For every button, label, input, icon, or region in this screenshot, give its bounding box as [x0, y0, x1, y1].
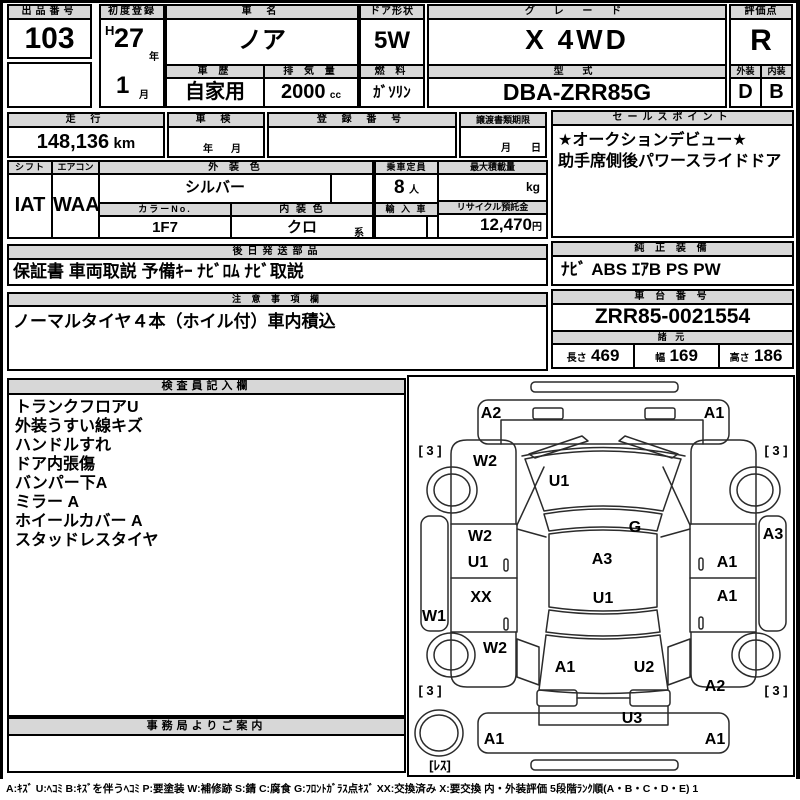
damage-mark-U2: U2	[634, 660, 654, 676]
transfer-deadline-box: 譲渡書類期限 月 日	[459, 112, 547, 158]
grade-label: グ レ ー ド	[429, 6, 725, 20]
lot-number-box: 出品番号 103	[7, 4, 92, 59]
car-name-label: 車 名	[167, 6, 357, 20]
inspector-note-line: 外装うすい線キズ	[15, 417, 398, 436]
damage-mark-A1: A1	[555, 660, 575, 676]
shift-box: シフト IAT	[7, 160, 53, 239]
equipment-label: 純 正 装 備	[553, 243, 792, 257]
lot-number-empty-box	[7, 62, 92, 108]
damage-marks-layer: A2A1[ 3 ][ 3 ]W2U1GW2U1A3A3A1XXU1A1W1W2A…	[409, 377, 793, 775]
capacity-box: 乗車定員 8 人 輸 入 車	[374, 160, 439, 239]
damage-mark-A2: A2	[705, 679, 725, 695]
damage-mark-U1: U1	[549, 474, 569, 490]
equipment-box: 純 正 装 備 ﾅﾋﾞ ABS ｴｱB PS PW	[551, 241, 794, 286]
score-value: R	[731, 20, 791, 66]
exterior-grade-label: 外装	[731, 66, 760, 79]
office-info-label: 事務局よりご案内	[9, 719, 404, 736]
displacement-value: 2000	[281, 81, 326, 103]
inspector-note-line: バンパー下A	[15, 474, 398, 493]
equipment-value: ﾅﾋﾞ ABS ｴｱB PS PW	[553, 257, 792, 283]
later-parts-value: 保証書 車両取説 予備ｷｰ ﾅﾋﾞﾛﾑ ﾅﾋﾞ取説	[9, 260, 546, 284]
exterior-grade-value: D	[731, 79, 760, 105]
lot-number-value: 103	[9, 20, 90, 58]
inspector-note-line: ハンドルすれ	[15, 436, 398, 455]
sales-point-label: セールスポイント	[553, 112, 792, 126]
interior-color-suffix: 系	[354, 224, 364, 239]
import-cell-right	[428, 217, 437, 239]
exterior-color-value: シルバー	[100, 175, 332, 202]
damage-mark-3: [ 3 ]	[764, 443, 787, 459]
lot-number-label: 出品番号	[9, 6, 90, 20]
displacement-label: 排 気 量	[265, 66, 357, 79]
damage-mark-3: [ 3 ]	[418, 443, 441, 459]
dimensions-label: 諸 元	[553, 330, 792, 345]
damage-mark-XX: XX	[470, 590, 491, 606]
legend-text: A:ｷｽﾞ U:ﾍｺﾐ B:ｷｽﾞを伴うﾍｺﾐ P:要塗装 W:補修跡 S:錆 …	[6, 781, 796, 796]
grade-box: グ レ ー ド X 4WD 型 式 DBA-ZRR85G	[427, 4, 727, 108]
chassis-dims-box: 車 台 番 号 ZRR85-0021554 諸 元 長さ 469 幅 169 高…	[551, 289, 794, 369]
max-load-box: 最大積載量 kg リサイクル預託金 12,470円	[437, 160, 548, 239]
damage-mark-A1: A1	[717, 589, 737, 605]
door-shape-value: 5W	[361, 20, 423, 66]
later-parts-box: 後日発送部品 保証書 車両取説 予備ｷｰ ﾅﾋﾞﾛﾑ ﾅﾋﾞ取説	[7, 244, 548, 286]
recycle-value: 12,470	[480, 215, 532, 234]
aircon-value: WAA	[53, 175, 98, 235]
score-box: 評価点 R 外装 D 内装 B	[729, 4, 793, 108]
length-value: 469	[591, 346, 619, 365]
max-load-label: 最大積載量	[439, 162, 546, 175]
notes-box: 注 意 事 項 欄 ノーマルタイヤ４本（ホイル付）車内積込	[7, 292, 548, 371]
chassis-label: 車 台 番 号	[553, 291, 792, 305]
chassis-value: ZRR85-0021554	[553, 305, 792, 330]
damage-mark-U1: U1	[593, 591, 613, 607]
length-label: 長さ	[567, 353, 587, 364]
damage-mark-U3: U3	[622, 711, 642, 727]
inspection-year-unit: 年	[203, 140, 213, 155]
door-shape-label: ドア形状	[361, 6, 423, 20]
max-load-unit: kg	[439, 175, 546, 202]
later-parts-label: 後日発送部品	[9, 246, 546, 260]
first-reg-era: H	[105, 23, 114, 38]
inspection-box: 車 検 年 月	[167, 112, 265, 158]
car-name-value: ノア	[167, 20, 357, 66]
recycle-unit: 円	[532, 222, 542, 233]
fuel-label: 燃 料	[361, 66, 423, 79]
displacement-unit: cc	[330, 90, 341, 101]
damage-mark-: [ﾚｽ]	[429, 758, 451, 774]
registration-number-box: 登 録 番 号	[267, 112, 457, 158]
damage-mark-G: G	[629, 520, 641, 536]
model-code-value: DBA-ZRR85G	[429, 79, 725, 106]
first-reg-month: 1	[116, 72, 129, 100]
sales-point-line: ★オークションデビュー★	[558, 130, 787, 151]
damage-mark-3: [ 3 ]	[418, 683, 441, 699]
damage-diagram-box: A2A1[ 3 ][ 3 ]W2U1GW2U1A3A3A1XXU1A1W1W2A…	[407, 375, 795, 777]
import-cell-left	[376, 217, 428, 239]
import-label: 輸 入 車	[376, 204, 437, 217]
inspector-notes-lines: トランクフロアU外装うすい線キズハンドルすれドア内張傷バンパー下Aミラー Aホイ…	[9, 395, 404, 553]
damage-mark-A1: A1	[484, 732, 504, 748]
inspector-note-line: ドア内張傷	[15, 455, 398, 474]
damage-mark-A1: A1	[717, 555, 737, 571]
inspector-note-line: ホイールカバー A	[15, 512, 398, 531]
notes-value: ノーマルタイヤ４本（ホイル付）車内積込	[9, 307, 546, 333]
aircon-box: エアコン WAA	[51, 160, 100, 239]
damage-mark-A3: A3	[592, 552, 612, 568]
interior-color-value: クロ	[232, 217, 372, 239]
sales-point-line: 助手席側後パワースライドドア	[558, 151, 787, 172]
damage-mark-A1: A1	[704, 406, 724, 422]
interior-grade-label: 内装	[762, 66, 791, 79]
width-value: 169	[670, 346, 698, 365]
color-no-label: カラーNo.	[100, 204, 232, 217]
transfer-day-unit: 日	[531, 139, 541, 154]
damage-mark-A3: A3	[763, 527, 783, 543]
inspector-note-line: トランクフロアU	[15, 398, 398, 417]
damage-mark-A2: A2	[481, 406, 501, 422]
inspection-month-unit: 月	[231, 140, 241, 155]
notes-label: 注 意 事 項 欄	[9, 294, 546, 307]
capacity-label: 乗車定員	[376, 162, 437, 175]
aircon-label: エアコン	[53, 162, 98, 175]
inspector-notes-label: 検査員記入欄	[9, 380, 404, 395]
door-shape-box: ドア形状 5W 燃 料 ｶﾞｿﾘﾝ	[359, 4, 425, 108]
office-info-box: 事務局よりご案内	[7, 717, 406, 773]
color-no-value: 1F7	[100, 217, 232, 239]
height-value: 186	[754, 346, 782, 365]
history-value: 自家用	[167, 79, 263, 106]
exterior-color-extra-cell	[332, 175, 372, 202]
first-registration-box: 初度登録 H 27 年 1 月	[99, 4, 165, 108]
first-reg-year: 27	[114, 23, 144, 54]
frame-top	[0, 0, 800, 3]
transfer-deadline-label: 譲渡書類期限	[461, 114, 545, 128]
frame-left	[0, 0, 3, 779]
interior-color-label: 内 装 色	[232, 204, 372, 217]
recycle-label: リサイクル預託金	[439, 202, 546, 215]
damage-mark-W1: W1	[422, 609, 446, 625]
sales-point-box: セールスポイント ★オークションデビュー★助手席側後パワースライドドア	[551, 110, 794, 238]
capacity-unit: 人	[409, 185, 419, 196]
damage-mark-W2: W2	[468, 529, 492, 545]
score-label: 評価点	[731, 6, 791, 20]
damage-mark-U1: U1	[468, 555, 488, 571]
shift-value: IAT	[9, 175, 51, 235]
color-block: 外 装 色 シルバー カラーNo. 内 装 色 1F7 クロ 系	[98, 160, 374, 239]
auction-sheet-page: { "header": { "lot_label": "出品番号", "lot_…	[0, 0, 800, 800]
registration-number-label: 登 録 番 号	[269, 114, 455, 128]
shift-label: シフト	[9, 162, 51, 175]
height-label: 高さ	[730, 353, 750, 364]
inspector-note-line: スタッドレスタイヤ	[15, 531, 398, 550]
sales-point-lines: ★オークションデビュー★助手席側後パワースライドドア	[553, 126, 792, 176]
mileage-label: 走 行	[9, 114, 163, 128]
transfer-month-unit: 月	[501, 139, 511, 154]
damage-mark-W2: W2	[473, 454, 497, 470]
first-reg-year-unit: 年	[149, 48, 159, 63]
grade-value: X 4WD	[429, 20, 725, 66]
frame-right	[796, 0, 800, 779]
damage-mark-A1: A1	[705, 732, 725, 748]
car-name-box: 車 名 ノア 車 歴 自家用 排 気 量 2000 cc	[165, 4, 359, 108]
first-reg-month-unit: 月	[139, 86, 149, 101]
width-label: 幅	[655, 353, 665, 364]
model-code-label: 型 式	[429, 66, 725, 79]
mileage-box: 走 行 148,136 km	[7, 112, 165, 158]
fuel-value: ｶﾞｿﾘﾝ	[361, 79, 423, 106]
inspector-notes-box: 検査員記入欄 トランクフロアU外装うすい線キズハンドルすれドア内張傷バンパー下A…	[7, 378, 406, 717]
inspection-label: 車 検	[169, 114, 263, 128]
exterior-color-label: 外 装 色	[100, 162, 372, 175]
history-label: 車 歴	[167, 66, 263, 79]
damage-mark-3: [ 3 ]	[764, 683, 787, 699]
damage-mark-W2: W2	[483, 641, 507, 657]
interior-grade-value: B	[762, 79, 791, 105]
capacity-value: 8	[394, 177, 405, 198]
inspector-note-line: ミラー A	[15, 493, 398, 512]
mileage-unit: km	[114, 135, 136, 152]
mileage-value: 148,136	[37, 131, 109, 153]
first-registration-label: 初度登録	[101, 6, 163, 20]
